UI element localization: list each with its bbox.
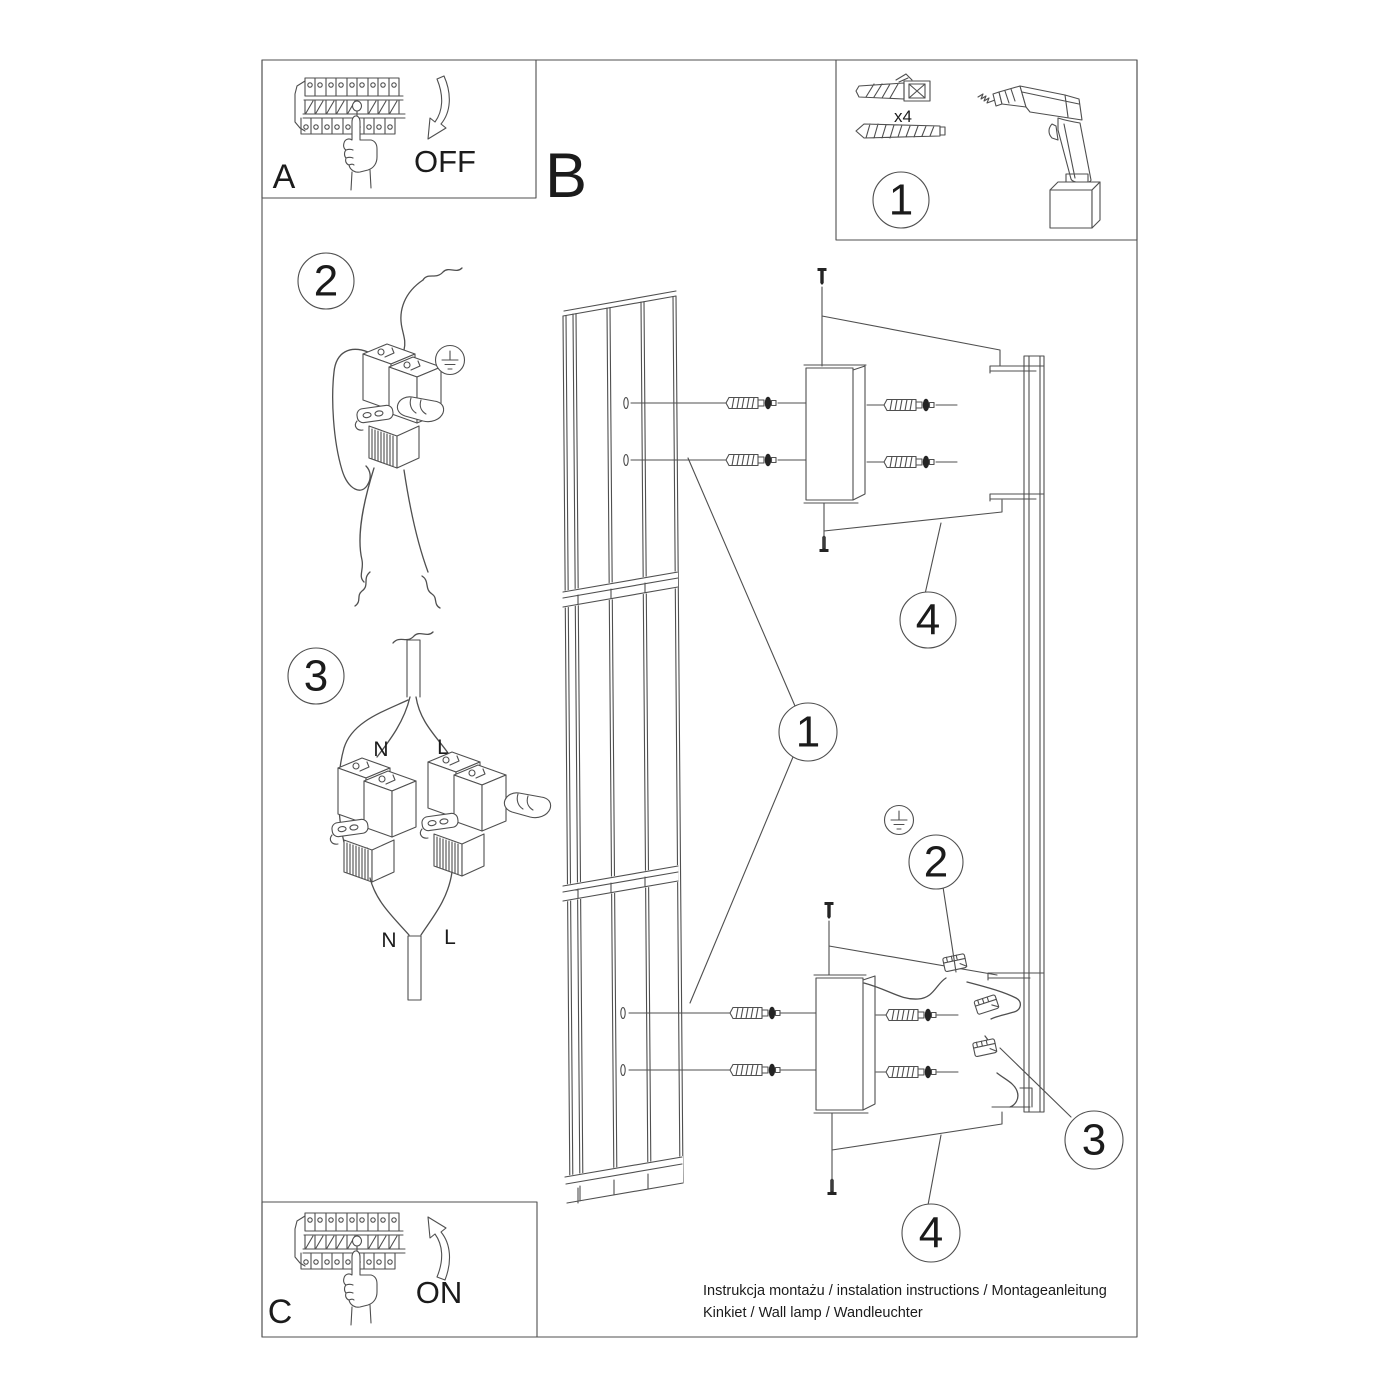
footer: Instrukcja montażu / instalation instruc…	[703, 1283, 1107, 1321]
wall-anchor-screw-icon	[886, 1066, 936, 1078]
svg-text:2: 2	[314, 257, 338, 306]
terminal-n-label: N	[373, 738, 388, 761]
ground-icon	[436, 346, 465, 375]
wall-anchor-screw-icon	[726, 397, 776, 409]
panel-a-label: A	[273, 158, 296, 196]
svg-text:1: 1	[796, 708, 820, 757]
svg-text:3: 3	[1082, 1116, 1106, 1165]
cable-bottom	[408, 936, 421, 1000]
footer-line-2: Kinkiet / Wall lamp / Wandleuchter	[703, 1305, 923, 1321]
callout-tools-step: 1	[873, 172, 929, 228]
drill-icon	[978, 86, 1100, 228]
wall-anchor-screw-icon	[726, 454, 776, 466]
screw-icon	[856, 124, 945, 138]
svg-text:2: 2	[924, 838, 948, 887]
footer-line-1: Instrukcja montażu / instalation instruc…	[703, 1283, 1107, 1299]
step-line-neutral-wiring: 3 N L N L	[288, 632, 551, 1000]
svg-text:4: 4	[919, 1209, 943, 1258]
terminal-block-icon	[420, 752, 506, 876]
callout-ground-terminal: 2	[909, 835, 963, 972]
instruction-sheet: A OFF B x4 1	[0, 0, 1400, 1400]
anchor-count-label: x4	[894, 107, 912, 126]
pointing-hand-icon	[344, 1251, 377, 1325]
pointing-hand-icon	[344, 116, 377, 190]
callout-step-2: 2	[298, 253, 354, 309]
sheet-frame	[262, 60, 1137, 1337]
wire	[393, 632, 433, 643]
terminal-block-icon	[330, 758, 416, 882]
arrow-up-icon	[428, 1217, 450, 1280]
off-label: OFF	[414, 144, 476, 179]
instruction-diagram: A OFF B x4 1	[0, 0, 1400, 1400]
cable-top	[407, 640, 420, 697]
panel-breaker-off: A OFF	[273, 76, 476, 196]
lamp-wiring	[864, 954, 1020, 1107]
callout-bracket-bottom: 4	[902, 1135, 960, 1262]
ground-icon	[885, 806, 914, 835]
wire	[401, 280, 423, 350]
pressing-hand-icon	[504, 793, 550, 818]
wall-anchor-screw-icon	[730, 1007, 780, 1019]
panel-tools: x4 1	[856, 74, 1100, 228]
step-ground-wiring: 2	[298, 253, 465, 608]
wire	[423, 268, 462, 280]
wire-connector-icon	[973, 1039, 997, 1057]
callout-bracket-top: 4	[900, 523, 956, 648]
cable-n-label: N	[381, 929, 396, 952]
svg-text:1: 1	[889, 176, 913, 225]
callout-lamp-body: 1	[688, 458, 837, 1003]
panel-breaker-on: C ON	[268, 1213, 463, 1331]
panel-c-label: C	[268, 1293, 293, 1331]
wall-anchor-screw-icon	[730, 1064, 780, 1076]
circuit-breaker-icon	[295, 1213, 405, 1269]
cable-l-label: L	[444, 926, 456, 949]
wire	[370, 878, 409, 935]
circuit-breaker-icon	[295, 78, 405, 134]
panel-b-label: B	[545, 141, 587, 211]
wire	[404, 470, 440, 608]
wall-anchor-screw-icon	[886, 1009, 936, 1021]
assembly-drawing: 1 4 2 3 4	[563, 268, 1123, 1262]
wall-anchor-icon	[856, 74, 930, 101]
svg-text:3: 3	[304, 652, 328, 701]
callout-wire-connector: 3	[1000, 1048, 1123, 1169]
callout-step-3: 3	[288, 648, 344, 704]
wall-anchor-screw-icon	[884, 399, 934, 411]
arrow-down-icon	[428, 76, 449, 139]
svg-text:4: 4	[916, 596, 940, 645]
wire-connector-icon	[974, 995, 999, 1015]
lamp-body	[563, 291, 683, 1204]
wall-anchor-screw-icon	[884, 456, 934, 468]
on-label: ON	[416, 1275, 463, 1310]
